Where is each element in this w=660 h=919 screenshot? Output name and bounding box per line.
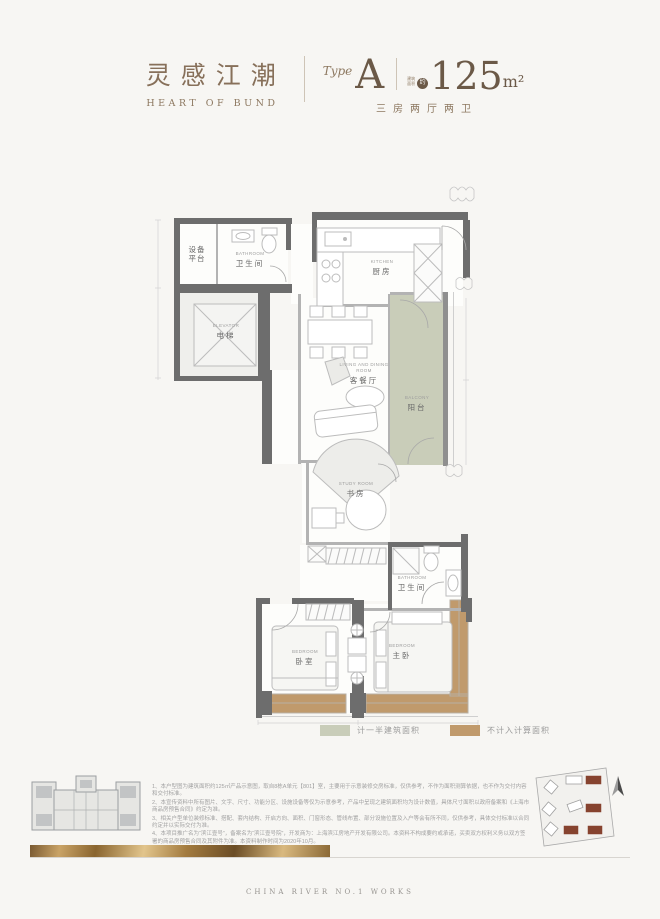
legend-swatch-half-area [320, 725, 350, 736]
floor-plan-drawing [150, 180, 490, 725]
type-area-row: Type A 建筑 面积 约 125 m² [323, 56, 525, 94]
legend: 计一半建筑面积 不计入计算面积 [320, 725, 580, 736]
legend-label-half-area: 计一半建筑面积 [357, 725, 420, 736]
approx-circle-badge: 约 [417, 78, 428, 89]
brand-title-en: HEART OF BUND [136, 98, 286, 109]
unit-type-block: Type A 建筑 面积 约 125 m² 三房两厅两卫 [323, 56, 525, 115]
footer-hairline [30, 857, 630, 858]
note-2: 2、本宣传资料中所有图片、文字、尺寸、功能分区、设施设备等仅为示意参考，产品中呈… [152, 800, 530, 815]
brand-title-cn: 灵感江潮 [136, 56, 286, 92]
building-footprint-drawing [30, 772, 142, 838]
area-micro-line2: 面积 [407, 81, 415, 86]
type-value: A [355, 56, 384, 94]
area-number: 125 [430, 58, 503, 94]
area-unit: m² [503, 72, 525, 91]
note-3: 3、相关户型单位装修标准、搭配、套内结构、开启方向、面积、门窗形态、管线布置、部… [152, 816, 530, 831]
legend-label-excluded: 不计入计算面积 [487, 725, 550, 736]
site-key-plan [528, 762, 632, 855]
legend-swatch-excluded [450, 725, 480, 736]
north-arrow-icon [612, 776, 624, 796]
note-1: 1、本户型图为建筑面积约125㎡产品示意图，取自8栋A单元【801】室，主要用于… [152, 784, 530, 799]
header-divider [304, 56, 305, 102]
type-divider [396, 58, 397, 90]
area-micro-label: 建筑 面积 [407, 76, 415, 86]
building-key-plan [30, 772, 142, 843]
flyer-page: 灵感江潮 HEART OF BUND Type A 建筑 面积 约 125 m²… [0, 0, 660, 919]
type-label: Type [323, 64, 353, 78]
floor-plan: 设备平台 BATHROOM 卫生间 ELEVATOR 电梯 KITCHEN 厨房… [150, 180, 490, 725]
disclaimer-notes: 1、本户型图为建筑面积约125㎡产品示意图，取自8栋A单元【801】室，主要用于… [152, 784, 530, 847]
header: 灵感江潮 HEART OF BUND Type A 建筑 面积 约 125 m²… [0, 56, 660, 115]
site-plan-drawing [528, 762, 632, 850]
brand-block: 灵感江潮 HEART OF BUND [136, 56, 286, 109]
footer-brand-line: CHINA RIVER NO.1 WORKS [0, 888, 660, 896]
room-spec: 三房两厅两卫 [369, 100, 478, 115]
